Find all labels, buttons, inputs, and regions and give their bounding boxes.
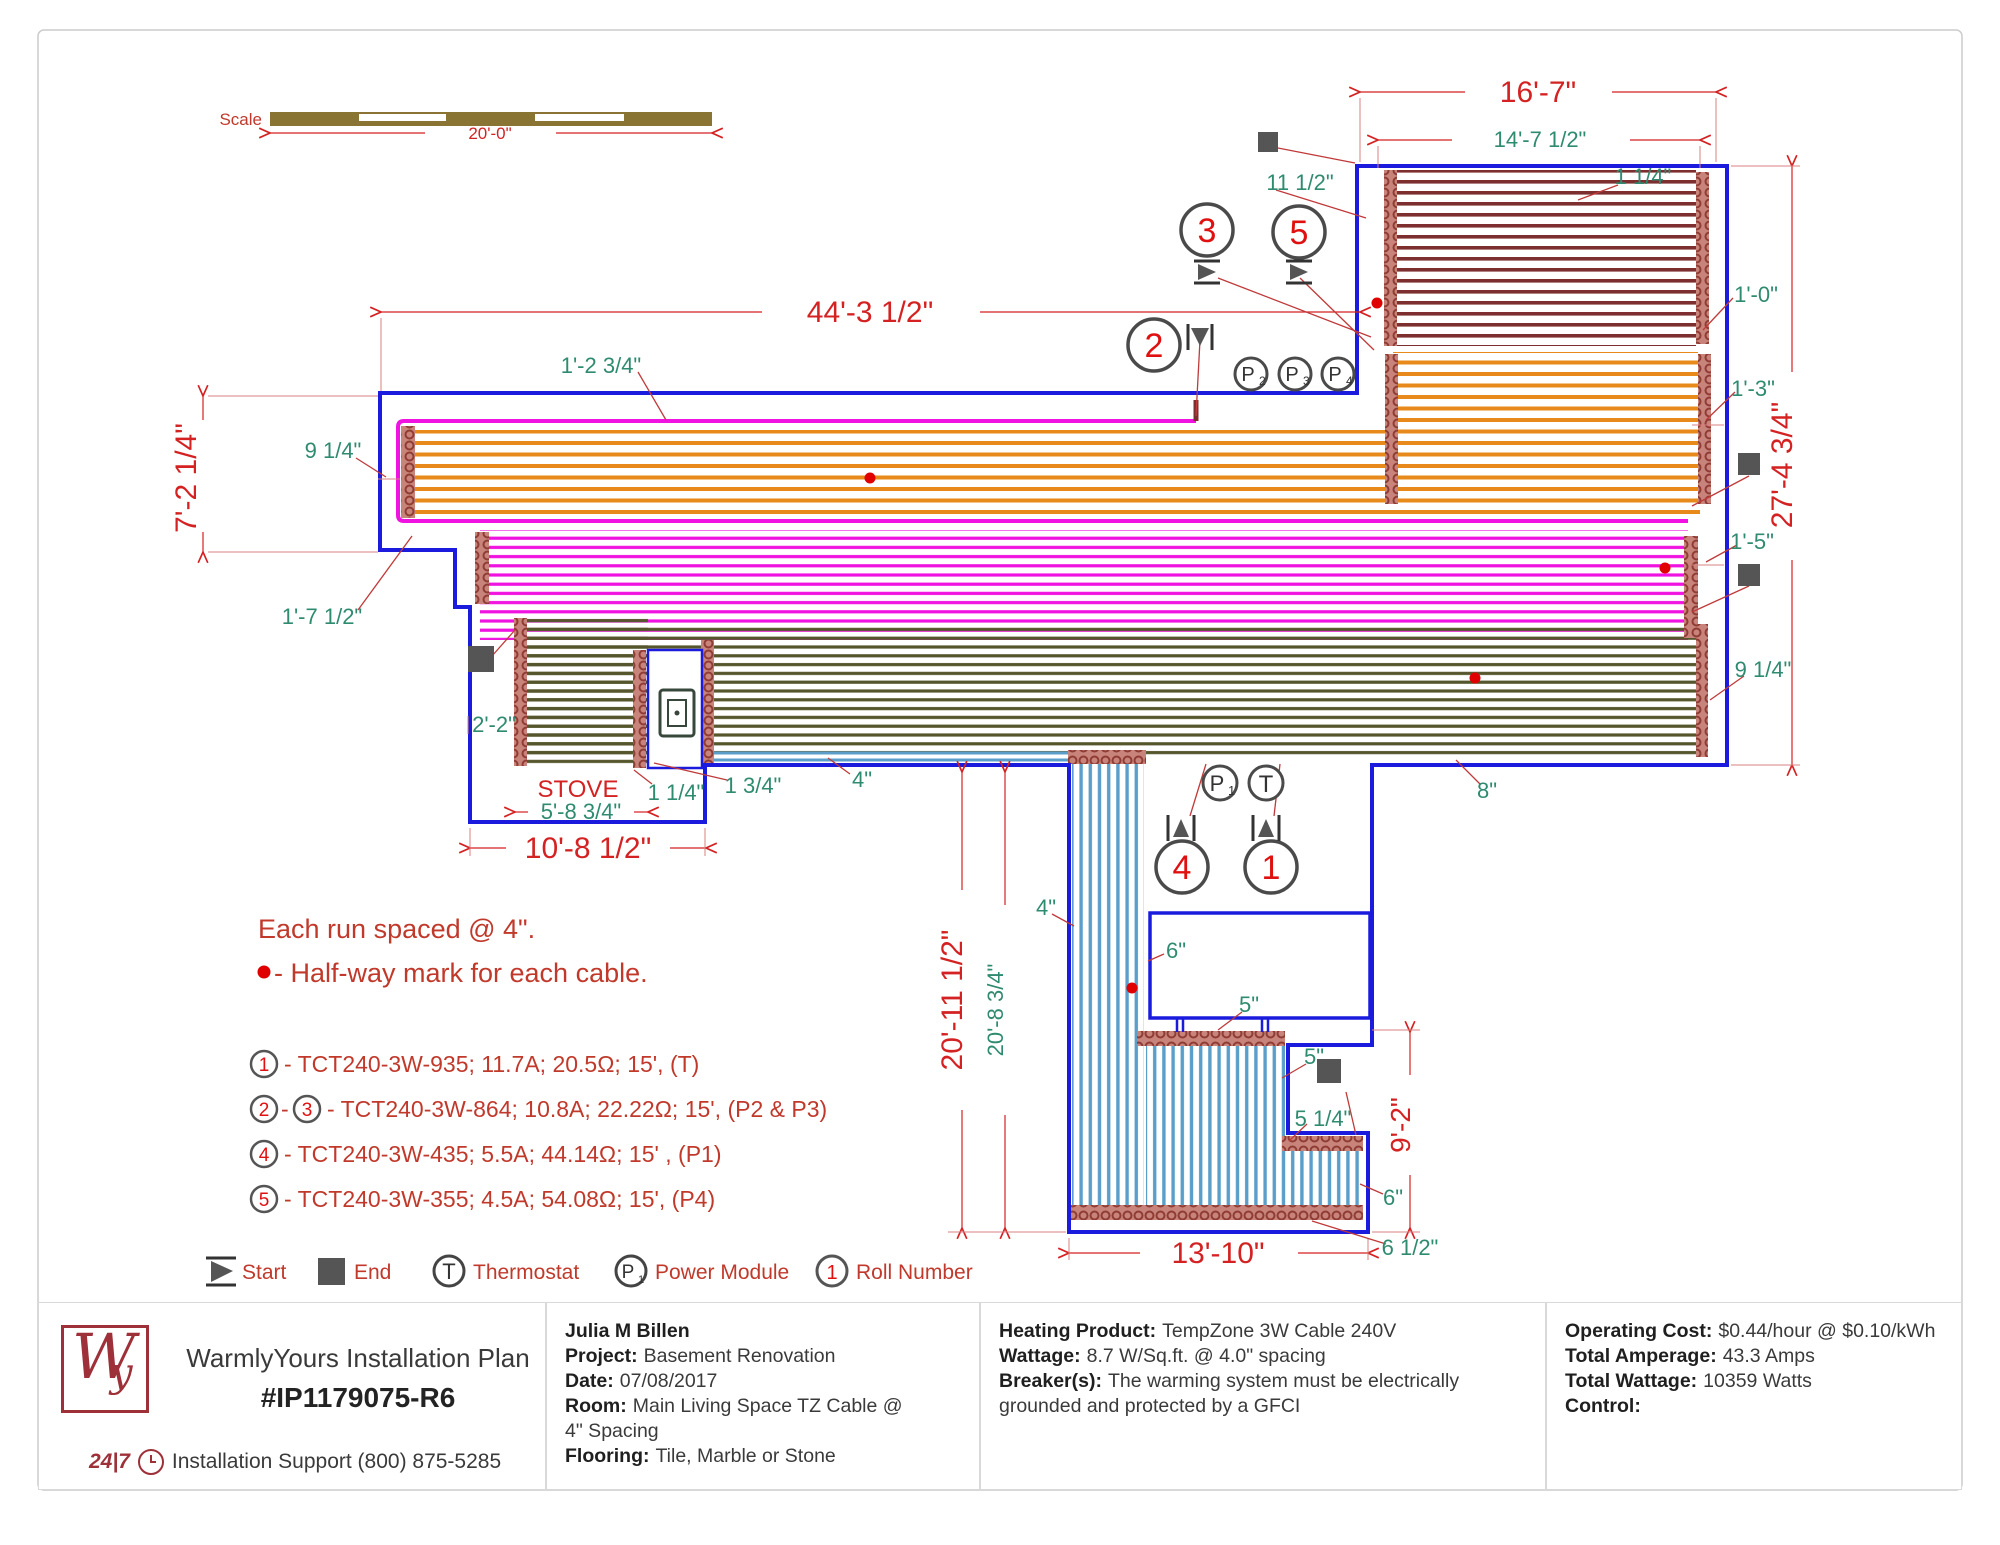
roll-list-spec: - TCT240-3W-864; 10.8A; 22.22Ω; 15', (P2…	[327, 1096, 827, 1122]
loop-band	[1068, 750, 1146, 764]
support-row: 24|7 Installation Support (800) 875-5285	[89, 1449, 501, 1475]
dim-label-gap-i: 6 1/2"	[1382, 1235, 1439, 1260]
loop-band	[1384, 170, 1397, 346]
note-halfway: - Half-way mark for each cable.	[274, 958, 648, 988]
thermostat-icon-label: T	[442, 1259, 455, 1284]
dim-label-left-step: 1'-7 1/2"	[282, 604, 363, 629]
control-label: Control:	[1565, 1395, 1641, 1417]
dim-label-right-height: 27'-4 3/4"	[1766, 402, 1799, 528]
halfway-dot	[1470, 673, 1481, 684]
dim-label-left-loop-offset: 9 1/4"	[305, 438, 362, 463]
roll3-cable-runs-band	[415, 430, 1700, 518]
dim-label-gap-d: 6"	[1166, 938, 1186, 963]
total-wattage-value: 10359 Watts	[1703, 1370, 1812, 1392]
customer-name: Julia M Billen	[565, 1320, 690, 1342]
thermostat-marker: T	[1249, 766, 1283, 800]
loop-band	[1696, 624, 1708, 757]
halfway-dot	[1127, 983, 1138, 994]
heating-product-label: Heating Product:	[999, 1320, 1156, 1342]
end-square-icon	[468, 646, 494, 672]
roll-marker-2: 2	[1128, 319, 1180, 371]
scale-length-label: 20'-0"	[468, 124, 511, 143]
dim-label-gap-c: 4"	[852, 767, 872, 792]
title-block-branding: W y WarmlyYours Installation Plan #IP117…	[38, 1302, 546, 1490]
dim-label-stove-offset: 2'-2"	[472, 712, 516, 737]
title-block-project: Julia M Billen Project:Basement Renovati…	[546, 1302, 980, 1490]
dim-label-top-left-offset: 11 1/2"	[1266, 170, 1333, 195]
dim-label-band-offset: 1'-2 3/4"	[561, 353, 642, 378]
end-square-icon	[1258, 132, 1278, 152]
roll-list-spec: - TCT240-3W-355; 4.5A; 54.08Ω; 15', (P4)	[284, 1186, 715, 1212]
halfway-dot	[1372, 298, 1383, 309]
operating-cost-value: $0.44/hour @ $0.10/kWh	[1718, 1320, 1935, 1342]
legend-roll-number-label: Roll Number	[856, 1261, 973, 1284]
legend-start: Start	[206, 1258, 287, 1285]
project-label: Project:	[565, 1345, 638, 1367]
dim-label-bottom-height: 20'-11 1/2"	[936, 930, 969, 1071]
roll-list: 1 - TCT240-3W-935; 11.7A; 20.5Ω; 15', (T…	[251, 1051, 827, 1212]
title-block-electrical: Operating Cost:$0.44/hour @ $0.10/kWh To…	[1546, 1302, 1962, 1490]
halfway-dot	[1660, 563, 1671, 574]
total-wattage-label: Total Wattage:	[1565, 1370, 1697, 1392]
end-square-icon	[1738, 564, 1760, 586]
loop-band	[1282, 1136, 1363, 1151]
power-module-4-marker: P 4	[1322, 358, 1354, 390]
roll5-cable-runs	[1393, 170, 1696, 346]
loop-band	[1070, 1205, 1363, 1220]
start-icon	[1286, 261, 1312, 283]
warmlyyours-logo: W y	[61, 1325, 149, 1413]
legend-start-label: Start	[242, 1261, 287, 1284]
clock-icon	[138, 1449, 164, 1475]
roll4-cable-runs-ext	[1285, 1151, 1362, 1207]
wattage-label: Wattage:	[999, 1345, 1081, 1367]
plan-notes: Each run spaced @ 4". - Half-way mark fo…	[258, 914, 648, 988]
note-spacing: Each run spaced @ 4".	[258, 914, 535, 944]
total-amperage-label: Total Amperage:	[1565, 1345, 1717, 1367]
dim-label-gap-g: 5 1/4"	[1295, 1106, 1352, 1131]
p3-sub: 3	[1303, 374, 1310, 388]
p2-sub: 2	[1259, 374, 1266, 388]
legend-end: End	[318, 1258, 391, 1285]
roll-number-icon-label: 1	[826, 1262, 837, 1284]
installation-plan-sheet: Scale 20'-0"	[0, 0, 2000, 1545]
power-module-icon-label: P	[622, 1262, 635, 1283]
dim-label-right-offset-a: 1'-0"	[1734, 282, 1778, 307]
power-module-1-marker: P 1	[1203, 766, 1237, 800]
support-phone: Installation Support (800) 875-5285	[172, 1450, 501, 1474]
p1-label: P	[1210, 771, 1225, 796]
roll-number-5: 5	[1290, 214, 1309, 252]
end-square-icon	[318, 1258, 345, 1285]
breaker-label: Breaker(s):	[999, 1370, 1102, 1392]
loop-band	[1137, 1031, 1285, 1046]
legend-end-label: End	[354, 1261, 391, 1284]
roll-list-sep: -	[281, 1096, 289, 1122]
wattage-value: 8.7 W/Sq.ft. @ 4.0" spacing	[1087, 1345, 1326, 1367]
roll-number-1: 1	[1262, 849, 1281, 887]
heating-product-value: TempZone 3W Cable 240V	[1162, 1320, 1396, 1342]
plan-title: WarmlyYours Installation Plan	[167, 1343, 549, 1374]
plan-title-group: WarmlyYours Installation Plan #IP1179075…	[167, 1343, 549, 1414]
roll-list-spec: - TCT240-3W-935; 11.7A; 20.5Ω; 15', (T)	[284, 1051, 699, 1077]
legend-thermostat: T Thermostat	[434, 1256, 579, 1286]
roll1-cable-runs-left	[515, 615, 648, 768]
roll-marker-4: 4	[1156, 841, 1208, 893]
loop-band	[514, 618, 527, 766]
scale-bar-gap	[535, 114, 624, 121]
loop-band	[1684, 536, 1698, 638]
roll-list-spec: - TCT240-3W-435; 5.5A; 44.14Ω; 15' , (P1…	[284, 1141, 722, 1167]
loop-band	[1698, 354, 1711, 504]
roll-list-row-4: 5 - TCT240-3W-355; 4.5A; 54.08Ω; 15', (P…	[251, 1186, 715, 1212]
dim-label-mid-gap: 4"	[1036, 895, 1056, 920]
operating-cost-label: Operating Cost:	[1565, 1320, 1712, 1342]
project-value: Basement Renovation	[644, 1345, 836, 1367]
roll4-cable-runs-lower	[1146, 1046, 1285, 1207]
badge-24-7: 24|7	[89, 1450, 130, 1474]
roll-list-num: 3	[302, 1100, 313, 1121]
dim-label-gap-h: 6"	[1383, 1185, 1403, 1210]
dim-label-bottom-inner-height: 20'-8 3/4"	[983, 964, 1008, 1057]
roll-list-row-1: 1 - TCT240-3W-935; 11.7A; 20.5Ω; 15', (T…	[251, 1051, 699, 1077]
halfway-dot	[865, 473, 876, 484]
p4-sub: 4	[1346, 374, 1353, 388]
dim-label-gap-a: 1 1/4"	[648, 780, 705, 805]
flooring-label: Flooring:	[565, 1445, 649, 1467]
p4-label: P	[1328, 364, 1341, 386]
dim-label-main-width: 44'-3 1/2"	[807, 296, 933, 329]
dim-label-stove-width: 5'-8 3/4"	[541, 799, 622, 824]
scale-bar: Scale 20'-0"	[219, 110, 712, 143]
floor-outlet-icon	[660, 690, 694, 736]
legend-roll-number: 1 Roll Number	[817, 1256, 973, 1286]
symbol-legend: Start End T Thermostat P 1 Power Module …	[206, 1256, 973, 1286]
legend-power-module: P 1 Power Module	[616, 1256, 789, 1286]
start-icon	[211, 1261, 233, 1282]
dim-label-right-ext-height: 9'-2"	[1385, 1097, 1416, 1153]
roll-list-num: 1	[259, 1055, 270, 1076]
loop-band	[1696, 172, 1709, 344]
scale-label: Scale	[219, 110, 262, 129]
title-block-product: Heating Product:TempZone 3W Cable 240V W…	[980, 1302, 1546, 1490]
end-square-icon	[1317, 1059, 1341, 1083]
dim-label-right-offset-c: 1'-5"	[1730, 529, 1774, 554]
dim-label-top-inner: 14'-7 1/2"	[1494, 127, 1587, 152]
p2-label: P	[1241, 364, 1254, 386]
start-icon	[1253, 815, 1279, 841]
dim-label-gap-b: 1 3/4"	[725, 773, 782, 798]
roll-list-row-3: 4 - TCT240-3W-435; 5.5A; 44.14Ω; 15' , (…	[251, 1141, 722, 1167]
plan-number: #IP1179075-R6	[167, 1382, 549, 1414]
dim-label-right-offset-b: 1'-3"	[1731, 376, 1775, 401]
dim-label-left-block-width: 10'-8 1/2"	[525, 832, 651, 865]
dim-label-olive-gap: 8"	[1477, 778, 1497, 803]
room-label: Room:	[565, 1395, 627, 1417]
loop-band	[633, 650, 646, 768]
roll-number-3: 3	[1198, 212, 1217, 250]
island-outline	[1150, 913, 1370, 1018]
roll-list-num: 2	[259, 1100, 270, 1121]
loop-band	[475, 532, 489, 604]
end-square-icon	[1738, 453, 1760, 475]
start-icon	[1194, 261, 1220, 283]
start-icon	[1168, 815, 1194, 841]
roll-number-4: 4	[1173, 849, 1192, 887]
roll-list-num: 5	[259, 1190, 270, 1211]
date-label: Date:	[565, 1370, 614, 1392]
dim-label-bottom-width: 13'-10"	[1171, 1237, 1264, 1270]
roll-list-num: 4	[259, 1145, 270, 1166]
dim-label-gap-e: 5"	[1239, 992, 1259, 1017]
legend-thermostat-label: Thermostat	[473, 1261, 579, 1284]
halfway-dot-legend	[258, 966, 271, 979]
power-module-2-marker: P 2	[1235, 358, 1267, 390]
scale-bar-gap	[359, 114, 446, 121]
logo-y: y	[110, 1350, 133, 1396]
flooring-value: Tile, Marble or Stone	[655, 1445, 835, 1467]
roll-number-2: 2	[1145, 327, 1164, 365]
roll-list-row-2: 2 - 3 - TCT240-3W-864; 10.8A; 22.22Ω; 15…	[251, 1096, 827, 1122]
dim-label-top-width: 16'-7"	[1500, 76, 1576, 109]
power-module-icon-sub: 1	[638, 1274, 644, 1286]
roll-marker-5: 5	[1273, 206, 1325, 258]
legend-power-module-label: Power Module	[655, 1261, 789, 1284]
roll-marker-3: 3	[1181, 204, 1233, 256]
total-amperage-value: 43.3 Amps	[1723, 1345, 1815, 1367]
power-module-3-marker: P 3	[1279, 358, 1311, 390]
dim-label-right-loop-offset: 9 1/4"	[1735, 657, 1792, 682]
date-value: 07/08/2017	[620, 1370, 718, 1392]
thermostat-label-t: T	[1259, 771, 1274, 798]
loop-band	[1385, 354, 1398, 504]
loop-band	[401, 426, 415, 518]
dim-label-top-offset: 1 1/4"	[1615, 164, 1672, 189]
dim-label-left-height: 7'-2 1/4"	[170, 423, 203, 533]
p3-label: P	[1285, 364, 1298, 386]
p1-sub: 1	[1228, 783, 1235, 798]
roll-marker-1: 1	[1245, 841, 1297, 893]
